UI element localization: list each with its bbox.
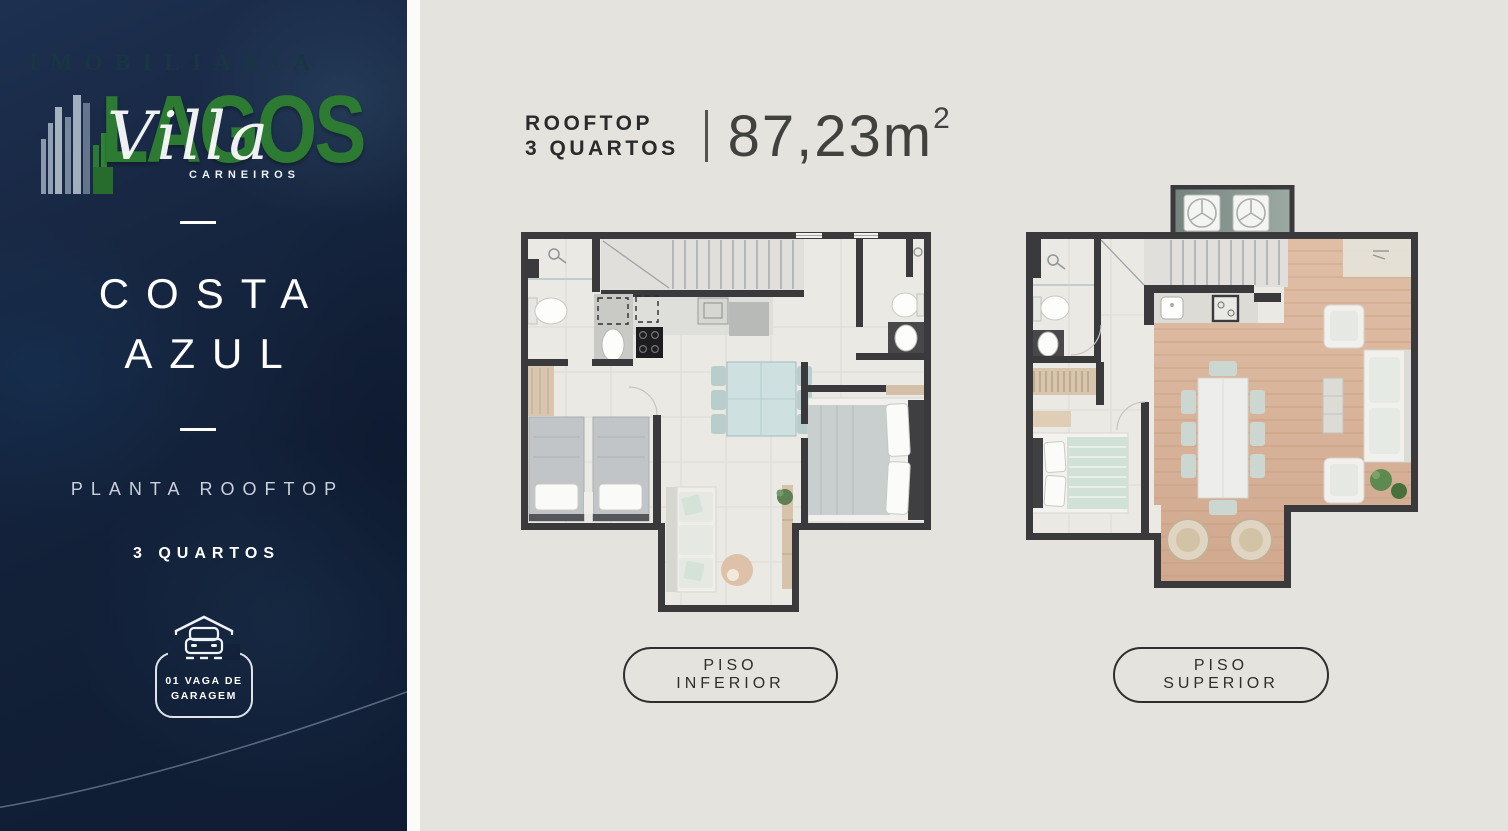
floorplan-piso-inferior bbox=[521, 232, 931, 612]
project-title-line1: COSTA bbox=[0, 270, 407, 318]
piso-superior-button[interactable]: PISO SUPERIOR bbox=[1113, 647, 1329, 703]
area-value: 87,23m2 bbox=[728, 102, 952, 170]
rooftop-fans bbox=[1173, 187, 1292, 235]
project-title-line2: AZUL bbox=[0, 330, 407, 378]
sidebar: IMOBILIÁRIA LAGOS Villa CARNEIROS COSTA … bbox=[0, 0, 407, 831]
piso-inferior-button[interactable]: PISO INFERIOR bbox=[623, 647, 838, 703]
brand-script-villa: Villa bbox=[107, 98, 271, 175]
plan-type-label: PLANTA ROOFTOP bbox=[0, 479, 407, 500]
agency-watermark: IMOBILIÁRIA LAGOS Villa CARNEIROS bbox=[25, 30, 365, 205]
sidebar-gap bbox=[407, 0, 420, 831]
page-title: ROOFTOP 3 QUARTOS 87,23m2 bbox=[525, 102, 952, 170]
car-under-roof-icon bbox=[173, 614, 235, 664]
page-title-left: ROOFTOP 3 QUARTOS bbox=[525, 111, 679, 161]
main-content: ROOFTOP 3 QUARTOS 87,23m2 bbox=[420, 0, 1508, 831]
watermark-imobiliaria: IMOBILIÁRIA bbox=[29, 50, 322, 76]
wave-decoration bbox=[0, 681, 407, 831]
title-divider bbox=[705, 110, 708, 162]
bedrooms-label: 3 QUARTOS bbox=[0, 545, 407, 563]
brand-sub-carneiros: CARNEIROS bbox=[189, 169, 300, 181]
divider-bottom bbox=[180, 428, 216, 431]
floorplan-piso-superior bbox=[1021, 185, 1421, 592]
brochure-page: IMOBILIÁRIA LAGOS Villa CARNEIROS COSTA … bbox=[0, 0, 1508, 831]
divider-top bbox=[180, 221, 216, 224]
bedroom-2 bbox=[801, 362, 926, 530]
stairs bbox=[601, 239, 804, 297]
